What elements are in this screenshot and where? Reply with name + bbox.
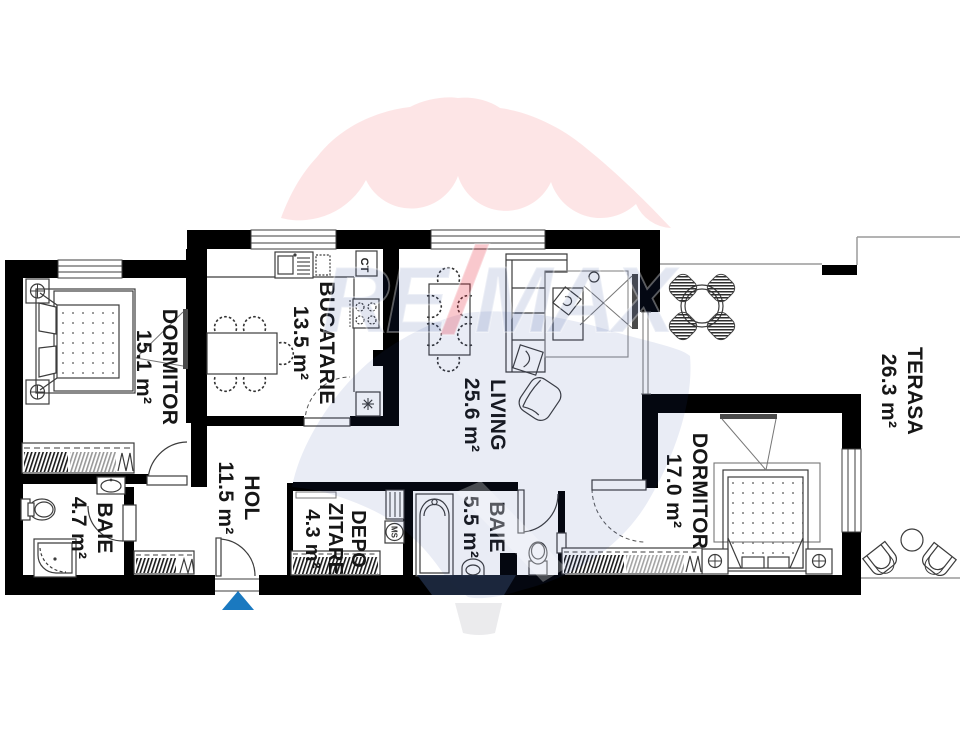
svg-text:HOL: HOL [240, 475, 263, 520]
svg-text:MS: MS [390, 526, 399, 539]
svg-text:13.5 m²: 13.5 m² [289, 306, 312, 380]
svg-text:11.5 m²: 11.5 m² [214, 461, 237, 534]
svg-text:4.7 m²: 4.7 m² [67, 497, 90, 560]
svg-text:TERASA: TERASA [903, 347, 926, 435]
svg-text:DORMITOR: DORMITOR [688, 433, 711, 549]
svg-text:DEPO: DEPO [347, 510, 369, 568]
svg-text:4.3 m²: 4.3 m² [301, 509, 323, 569]
svg-text:26.3 m²: 26.3 m² [877, 354, 900, 428]
svg-text:15.1 m²: 15.1 m² [132, 330, 155, 404]
svg-text:BAIE: BAIE [93, 502, 116, 553]
svg-text:ZITARE: ZITARE [324, 503, 346, 576]
svg-text:DORMITOR: DORMITOR [158, 309, 181, 425]
